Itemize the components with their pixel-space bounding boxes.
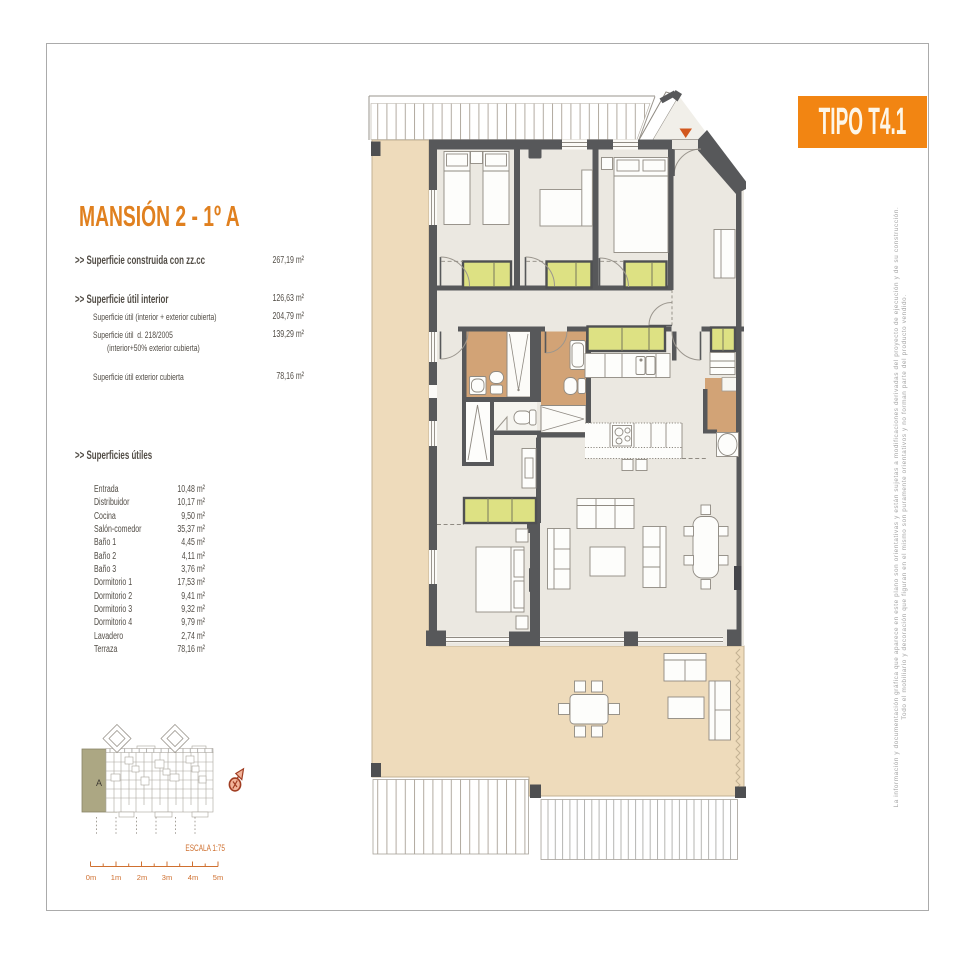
svg-text:1m: 1m xyxy=(111,873,121,882)
svg-text:5m: 5m xyxy=(213,873,223,882)
svg-text:2m: 2m xyxy=(137,873,147,882)
svg-text:0m: 0m xyxy=(86,873,96,882)
svg-text:A: A xyxy=(96,778,102,788)
svg-text:3m: 3m xyxy=(162,873,172,882)
svg-text:4m: 4m xyxy=(188,873,198,882)
